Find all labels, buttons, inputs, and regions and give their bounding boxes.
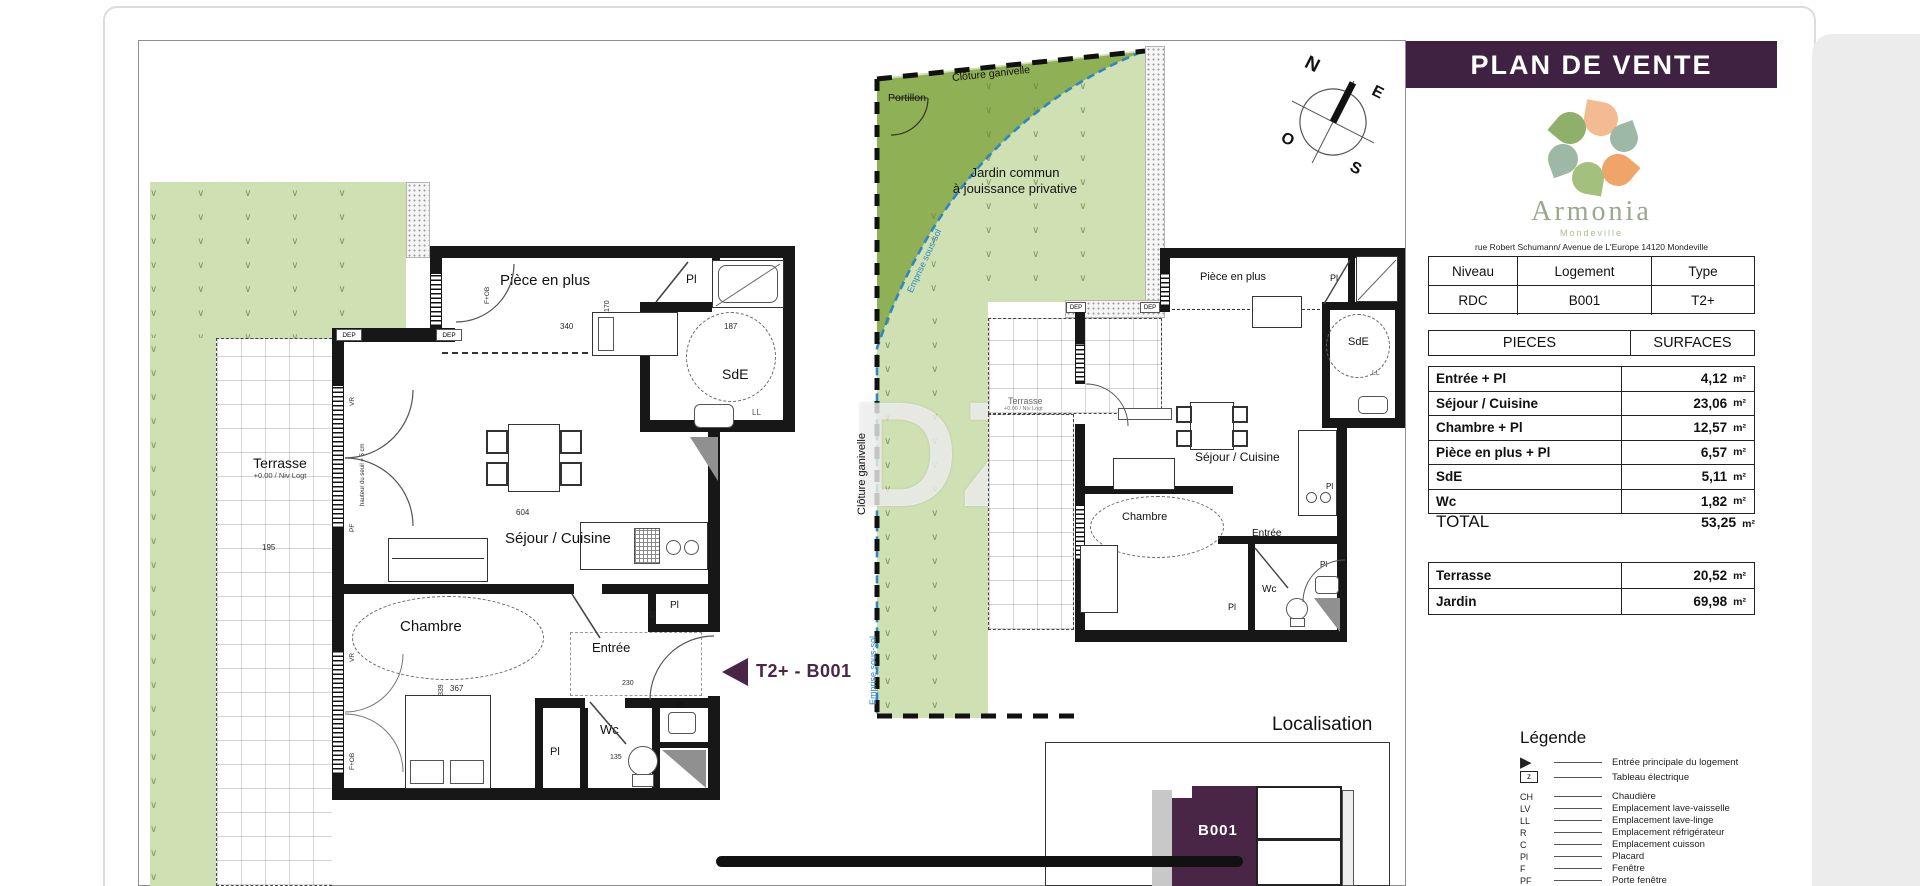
surface-row: Chambre + Pl 12,57m² — [1429, 416, 1754, 441]
unit-table-value: RDC — [1429, 286, 1517, 315]
entrance-arrow-icon: ▶ — [1520, 753, 1554, 771]
unit-table: Niveau Logement Type RDC B001 T2+ — [1428, 256, 1755, 314]
exterior-row: Terrasse 20,52m² — [1429, 563, 1754, 589]
unit-table-value: B001 — [1517, 286, 1651, 315]
exterior-row: Jardin 69,98m² — [1429, 589, 1754, 614]
unit-table-header: Type — [1651, 257, 1754, 286]
legend-item: PF Porte fenêtre — [1520, 875, 1667, 886]
surface-row: Pièce en plus + Pl 6,57m² — [1429, 441, 1754, 466]
panel-title: PLAN DE VENTE — [1406, 50, 1777, 81]
localisation-stair-strip — [1342, 790, 1354, 886]
legend-item: C Emplacement cuisson — [1520, 839, 1705, 850]
legend-item: LV Emplacement lave-vaisselle — [1520, 803, 1730, 814]
localisation-unit-label: B001 — [1198, 822, 1238, 839]
exterior-table: Terrasse 20,52m² Jardin 69,98m² — [1428, 562, 1755, 615]
brand-name: Armonia — [1405, 196, 1778, 228]
surfaces-header-pieces: PIECES — [1429, 331, 1630, 355]
legend-item: CH Chaudière — [1520, 791, 1656, 802]
legend-item: F Fenêtre — [1520, 863, 1645, 874]
surfaces-table: Entrée + Pl 4,12m² Séjour / Cuisine 23,0… — [1428, 366, 1755, 514]
surface-row: Séjour / Cuisine 23,06m² — [1429, 392, 1754, 417]
legend-item: ▶ Entrée principale du logement — [1520, 753, 1738, 771]
legend-title: Légende — [1520, 728, 1586, 748]
surface-row: Entrée + Pl 4,12m² — [1429, 367, 1754, 392]
localisation-neighbor-wall — [1256, 838, 1342, 841]
electrical-panel-icon: z — [1520, 771, 1554, 783]
legend-item: Pl Placard — [1520, 851, 1644, 862]
unit-table-value: T2+ — [1651, 286, 1754, 315]
brand-address: rue Robert Schumann/ Avenue de L'Europe … — [1405, 242, 1778, 252]
surfaces-header-surfaces: SURFACES — [1630, 331, 1754, 355]
localisation-gray-band — [1152, 790, 1172, 886]
legend-dash — [1554, 762, 1602, 763]
legend-item: R Emplacement réfrigérateur — [1520, 827, 1724, 838]
localisation-title: Localisation — [1272, 714, 1372, 736]
localisation-unit-b001-wing — [1172, 798, 1192, 886]
surface-row: SdE 5,11m² — [1429, 465, 1754, 490]
compass-rose — [1271, 60, 1395, 184]
legend-item: LL Emplacement lave-linge — [1520, 815, 1713, 826]
brand-city: Mondeville — [1405, 228, 1778, 238]
armonia-logo — [1540, 96, 1644, 200]
unit-table-header: Logement — [1517, 257, 1651, 286]
total-label: TOTAL — [1436, 512, 1489, 532]
legend-item: z Tableau électrique — [1520, 771, 1689, 783]
localisation-leader-line — [716, 856, 1243, 867]
localisation-neighbor-unit — [1256, 786, 1342, 886]
legend-dash — [1554, 777, 1602, 778]
total-value: 53,25m² — [1631, 514, 1755, 530]
plan-de-vente-page: ∨ ∨ ∨ ∨ ∨ ∨ ∨ ∨ ∨ ∨ ∨ ∨ ∨ ∨ ∨ ∨ ∨ ∨ ∨ ∨ … — [0, 0, 1920, 886]
surfaces-header: PIECES SURFACES — [1428, 330, 1755, 356]
unit-table-header: Niveau — [1429, 257, 1517, 286]
surface-row: Wc 1,82m² — [1429, 490, 1754, 514]
